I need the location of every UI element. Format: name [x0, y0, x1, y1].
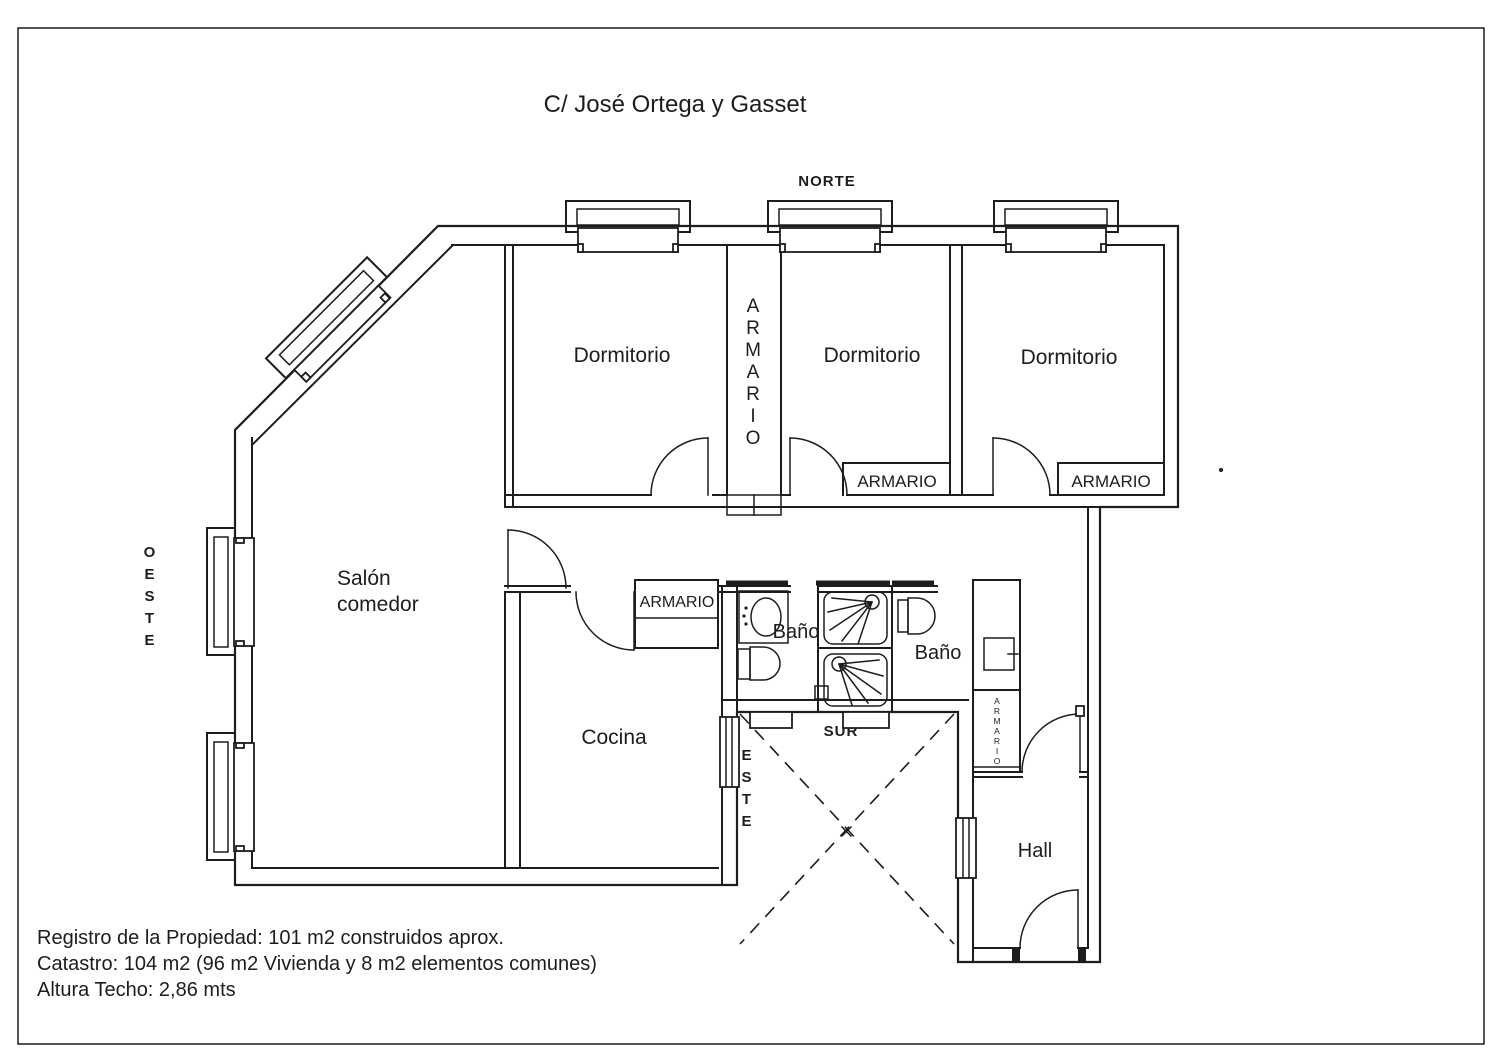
bathroom2-toilet-icon	[898, 598, 935, 634]
floor-plan-drawing: C/ José Ortega y Gasset NORTE SUR O E S …	[0, 0, 1500, 1060]
door-bedroom-3	[993, 438, 1050, 495]
closet-label-bedroom-2: ARMARIO	[857, 472, 936, 491]
room-label-salon-line1: Salón	[337, 567, 391, 590]
svg-text:A: A	[994, 726, 1000, 736]
room-label-bedroom-3: Dormitorio	[1021, 346, 1118, 369]
svg-text:A: A	[994, 696, 1000, 706]
room-label-bath-1: Baño	[773, 621, 820, 643]
door-hall-bottom	[1012, 890, 1086, 962]
compass-north-label: NORTE	[798, 173, 856, 190]
diagonal-window	[266, 257, 399, 390]
svg-text:E: E	[144, 632, 155, 649]
plan-title: C/ José Ortega y Gasset	[544, 91, 807, 118]
svg-text:M: M	[745, 340, 761, 361]
svg-text:R: R	[746, 384, 760, 405]
svg-text:O: O	[746, 428, 761, 449]
room-label-kitchen: Cocina	[581, 726, 647, 749]
compass-west-label: O E S T E	[144, 544, 157, 649]
room-label-bath-2: Baño	[915, 642, 962, 664]
compass-east-label: E S T E	[741, 747, 752, 830]
svg-text:O: O	[994, 756, 1001, 766]
patio-lightwell	[740, 712, 954, 944]
svg-text:R: R	[746, 318, 760, 339]
closet-label-corridor: ARMARIO	[640, 594, 715, 611]
svg-text:E: E	[741, 747, 752, 764]
svg-text:I: I	[996, 746, 998, 756]
page-border	[18, 28, 1484, 1044]
svg-text:A: A	[747, 296, 760, 317]
svg-text:A: A	[747, 362, 760, 383]
kitchen-patio-window	[720, 717, 739, 787]
svg-text:R: R	[994, 736, 1000, 746]
svg-text:T: T	[742, 791, 752, 808]
room-label-bedroom-1: Dormitorio	[574, 344, 671, 367]
closet-corridor-box	[635, 580, 718, 648]
door-bedroom-2	[790, 438, 847, 495]
bathroom1-toilet-icon	[738, 647, 780, 680]
stray-dot	[1219, 468, 1223, 472]
svg-text:O: O	[144, 544, 157, 561]
svg-text:R: R	[994, 706, 1000, 716]
door-salon	[508, 530, 566, 588]
note-registro: Registro de la Propiedad: 101 m2 constru…	[37, 927, 504, 949]
door-bedroom-1	[651, 438, 708, 495]
note-catastro: Catastro: 104 m2 (96 m2 Vivienda y 8 m2 …	[37, 953, 597, 975]
room-label-bedroom-2: Dormitorio	[824, 344, 921, 367]
utility-cabinet	[973, 580, 1020, 690]
shower-tray-bottom-icon	[824, 654, 887, 706]
door-hall-top	[1022, 706, 1084, 772]
note-altura: Altura Techo: 2,86 mts	[37, 979, 236, 1001]
svg-text:T: T	[145, 610, 155, 627]
west-window-2	[207, 733, 254, 860]
svg-text:I: I	[750, 406, 755, 427]
floor-plan-page: C/ José Ortega y Gasset NORTE SUR O E S …	[0, 0, 1500, 1060]
shower-tray-top-icon	[824, 592, 887, 644]
svg-text:S: S	[144, 588, 155, 605]
svg-text:E: E	[741, 813, 752, 830]
west-window-1	[207, 528, 254, 655]
interior-walls	[505, 245, 1164, 868]
closet-label-bedroom-3: ARMARIO	[1071, 472, 1150, 491]
room-label-hall: Hall	[1018, 840, 1052, 862]
room-label-salon-line2: comedor	[337, 593, 419, 616]
svg-text:E: E	[144, 566, 155, 583]
closet-label-center-vertical: A R M A R I O	[745, 296, 761, 449]
hall-patio-window	[956, 818, 976, 878]
svg-text:S: S	[741, 769, 752, 786]
svg-text:M: M	[993, 716, 1000, 726]
bathroom-drain-box	[815, 686, 828, 699]
door-kitchen	[576, 592, 634, 650]
closet-label-hall-vertical: A R M A R I O	[993, 696, 1000, 766]
